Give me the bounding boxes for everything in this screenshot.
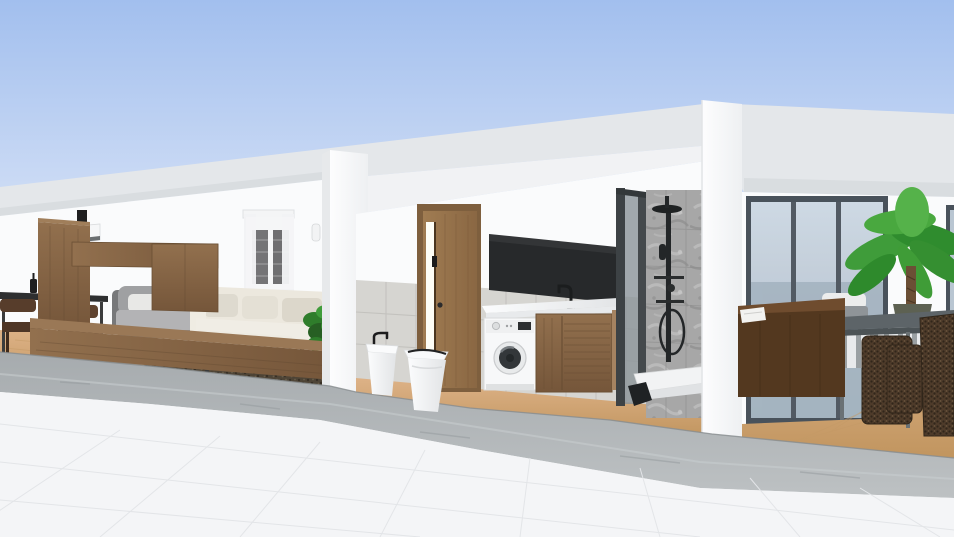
vanity-cabinet bbox=[536, 310, 618, 392]
door-handle bbox=[437, 302, 442, 307]
shower-glass bbox=[625, 192, 638, 404]
sofa-pillow bbox=[242, 296, 278, 319]
door-light-gap bbox=[426, 222, 434, 354]
render-viewport[interactable] bbox=[0, 0, 954, 537]
washer-knob bbox=[492, 322, 499, 329]
shower-shelf bbox=[654, 276, 684, 279]
washing-machine bbox=[484, 318, 536, 390]
shower-shelf bbox=[656, 300, 684, 303]
rattan-ottoman bbox=[887, 345, 922, 413]
room-patio-lounge bbox=[738, 187, 954, 458]
washer-display bbox=[518, 322, 531, 330]
hand-shower bbox=[659, 244, 666, 260]
wood-sofa-back bbox=[738, 298, 845, 397]
corner-pillar bbox=[702, 100, 742, 456]
wall-sconce bbox=[312, 224, 320, 241]
walk-in-shower bbox=[616, 186, 714, 422]
living-window bbox=[243, 210, 294, 292]
door-latch bbox=[432, 256, 437, 267]
sheer-overlay bbox=[246, 217, 294, 289]
rattan-chair-front bbox=[920, 314, 954, 436]
shower-mixer bbox=[667, 284, 675, 292]
